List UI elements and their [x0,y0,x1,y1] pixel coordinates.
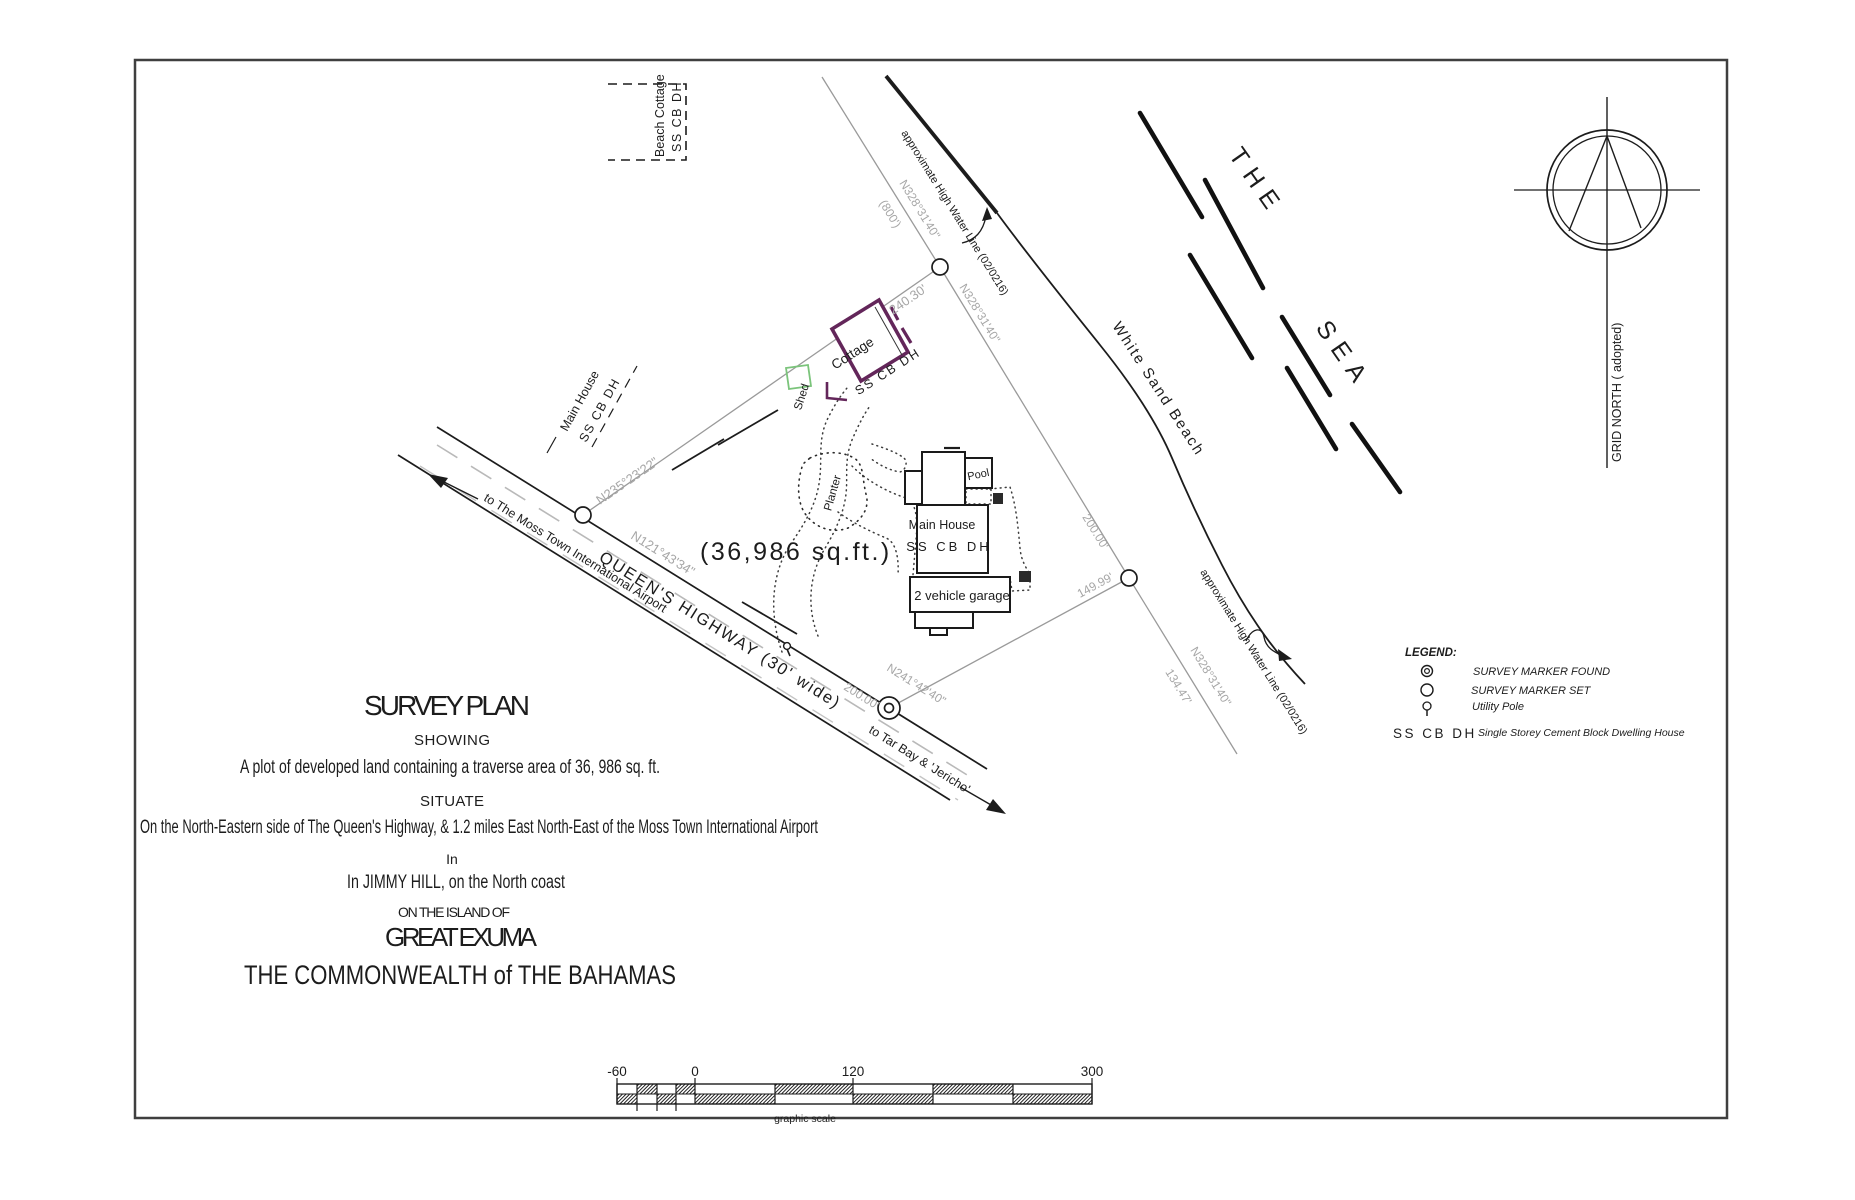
neighbor-house-label: Main House SS CB DH [547,366,637,453]
graphic-scale: -60 0 120 300 graphic scale [607,1064,1103,1125]
main-house-type-label: SS CB DH [906,539,991,554]
grid-north-compass [1514,97,1700,468]
beach-cottage-type: SS CB DH [670,81,684,152]
garage-rear-block [915,612,973,628]
ext-length: 134.47' [1162,666,1194,707]
cottage-annex [827,382,847,400]
shed-label: Shed [792,382,812,411]
island-name: GREAT EXUMA [385,922,538,952]
white-sand-beach-label: White Sand Beach [1109,319,1208,459]
legend-survey-marker-found-icon [1422,666,1433,677]
house-steps-2 [1019,571,1031,582]
house-upper-block [922,452,965,505]
survey-marker-set-icon [1121,570,1137,586]
to-airport-label: to The Moss Town International Airport [481,491,669,616]
road-centerline-2 [420,466,958,800]
survey-marker-set-icon [932,259,948,275]
country-name: THE COMMONWEALTH of THE BAHAMAS [244,960,676,990]
hwl-bottom-arrow-icon [1278,649,1292,661]
hwl-bottom-label: approximate High Water Line (02/0216) [1197,567,1309,736]
in-label: In [446,851,458,867]
island-of-label: ON THE ISLAND OF [398,904,510,920]
main-house-label: Main House [909,518,976,532]
settlement-line: In JIMMY HILL, on the North coast [347,872,566,893]
house-steps-1 [993,493,1003,504]
garage-step [930,628,947,635]
title-block: SURVEY PLAN SHOWING A plot of developed … [140,690,818,990]
scale-label: -60 [607,1064,627,1079]
legend-item-label: SURVEY MARKER SET [1471,685,1592,697]
survey-marker-found-inner [885,704,894,713]
ne-length: 200.00' [1079,511,1111,552]
driveway-east-edge [811,406,870,636]
showing-label: SHOWING [414,732,490,749]
the-sea-label-1: THE [1223,142,1290,221]
fence-line-2 [672,439,724,470]
scale-label: 120 [842,1064,865,1079]
compass-needle-left [1569,136,1607,231]
to-tarbay-label: to Tar Bay & 'Jericho' [866,723,972,797]
location-line: On the North-Eastern side of The Queen's… [140,817,818,838]
scale-label: 300 [1081,1064,1104,1079]
airport-arrow-icon [428,474,448,488]
legend-item-label: SURVEY MARKER FOUND [1473,666,1610,678]
planter-label: Planter [822,474,844,512]
scale-label: 0 [691,1064,699,1079]
grid-north-label: GRID NORTH ( adopted) [1610,323,1624,462]
utility-pole-icon [784,643,791,656]
garage-label: 2 vehicle garage [914,588,1009,603]
legend-item-label: Utility Pole [1472,701,1524,713]
neighbor-house-tick [547,437,556,453]
legend-abbr-label: Single Storey Cement Block Dwelling Hous… [1478,727,1685,739]
pool-deck-outline [966,489,991,504]
road-length: 200.00' [841,680,881,713]
description-line: A plot of developed land containing a tr… [240,757,660,778]
legend-survey-marker-set-icon [1421,684,1433,696]
road-name-label: QUEEN'S HIGHWAY (30' wide) [596,548,844,713]
situate-label: SITUATE [420,793,484,810]
walkway-blob [870,444,906,472]
compass-needle-right [1607,136,1641,228]
scale-caption: graphic scale [774,1113,836,1125]
beach-cottage-label: Beach Cottage [653,74,667,157]
driveway-west-edge [774,388,847,652]
tarbay-arrow-icon [986,799,1006,814]
survey-marker-set-icon [575,507,591,523]
legend: LEGEND: SURVEY MARKER FOUND SURVEY MARKE… [1393,647,1685,741]
area-label: (36,986 sq.ft.) [700,538,892,566]
sheet-title: SURVEY PLAN [364,690,534,721]
house-left-wing [905,471,922,504]
legend-title: LEGEND: [1405,647,1457,659]
legend-utility-pole-icon [1423,702,1431,716]
survey-plan-sheet: Beach Cottage SS CB DH Main House SS CB … [0,0,1855,1200]
nw-bearing: N235°23'22" [593,454,661,508]
legend-abbr: SS CB DH [1393,726,1477,741]
hwl-top-arrow-icon [982,207,992,221]
road-detail-line [742,602,797,634]
